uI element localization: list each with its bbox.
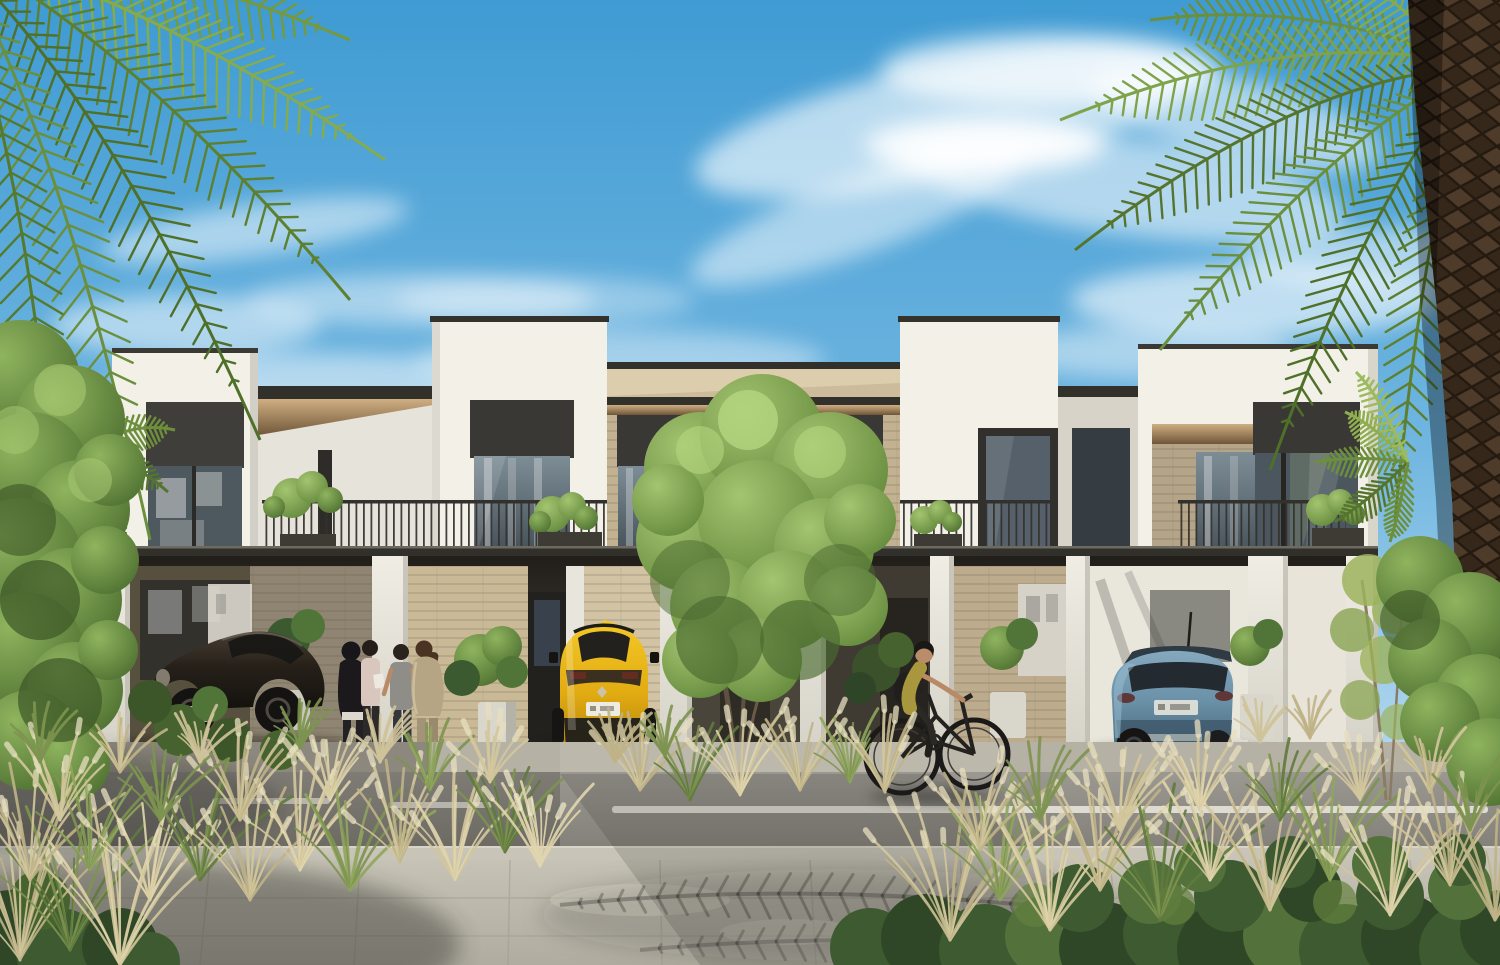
- mirror: [650, 652, 659, 663]
- mirror: [549, 652, 558, 663]
- scene-canvas: [0, 0, 1500, 965]
- car-rear-glass: [578, 631, 630, 662]
- wheel: [255, 687, 301, 733]
- car-rear-glass: [1128, 662, 1228, 692]
- wheel: [552, 708, 564, 744]
- architectural-rendering: [0, 0, 1500, 965]
- taillight: [1215, 691, 1233, 701]
- pier: [1066, 556, 1090, 746]
- facade-recess-right: [1058, 386, 1138, 558]
- upper-window: [1072, 428, 1130, 550]
- skid-plate: [1146, 734, 1202, 741]
